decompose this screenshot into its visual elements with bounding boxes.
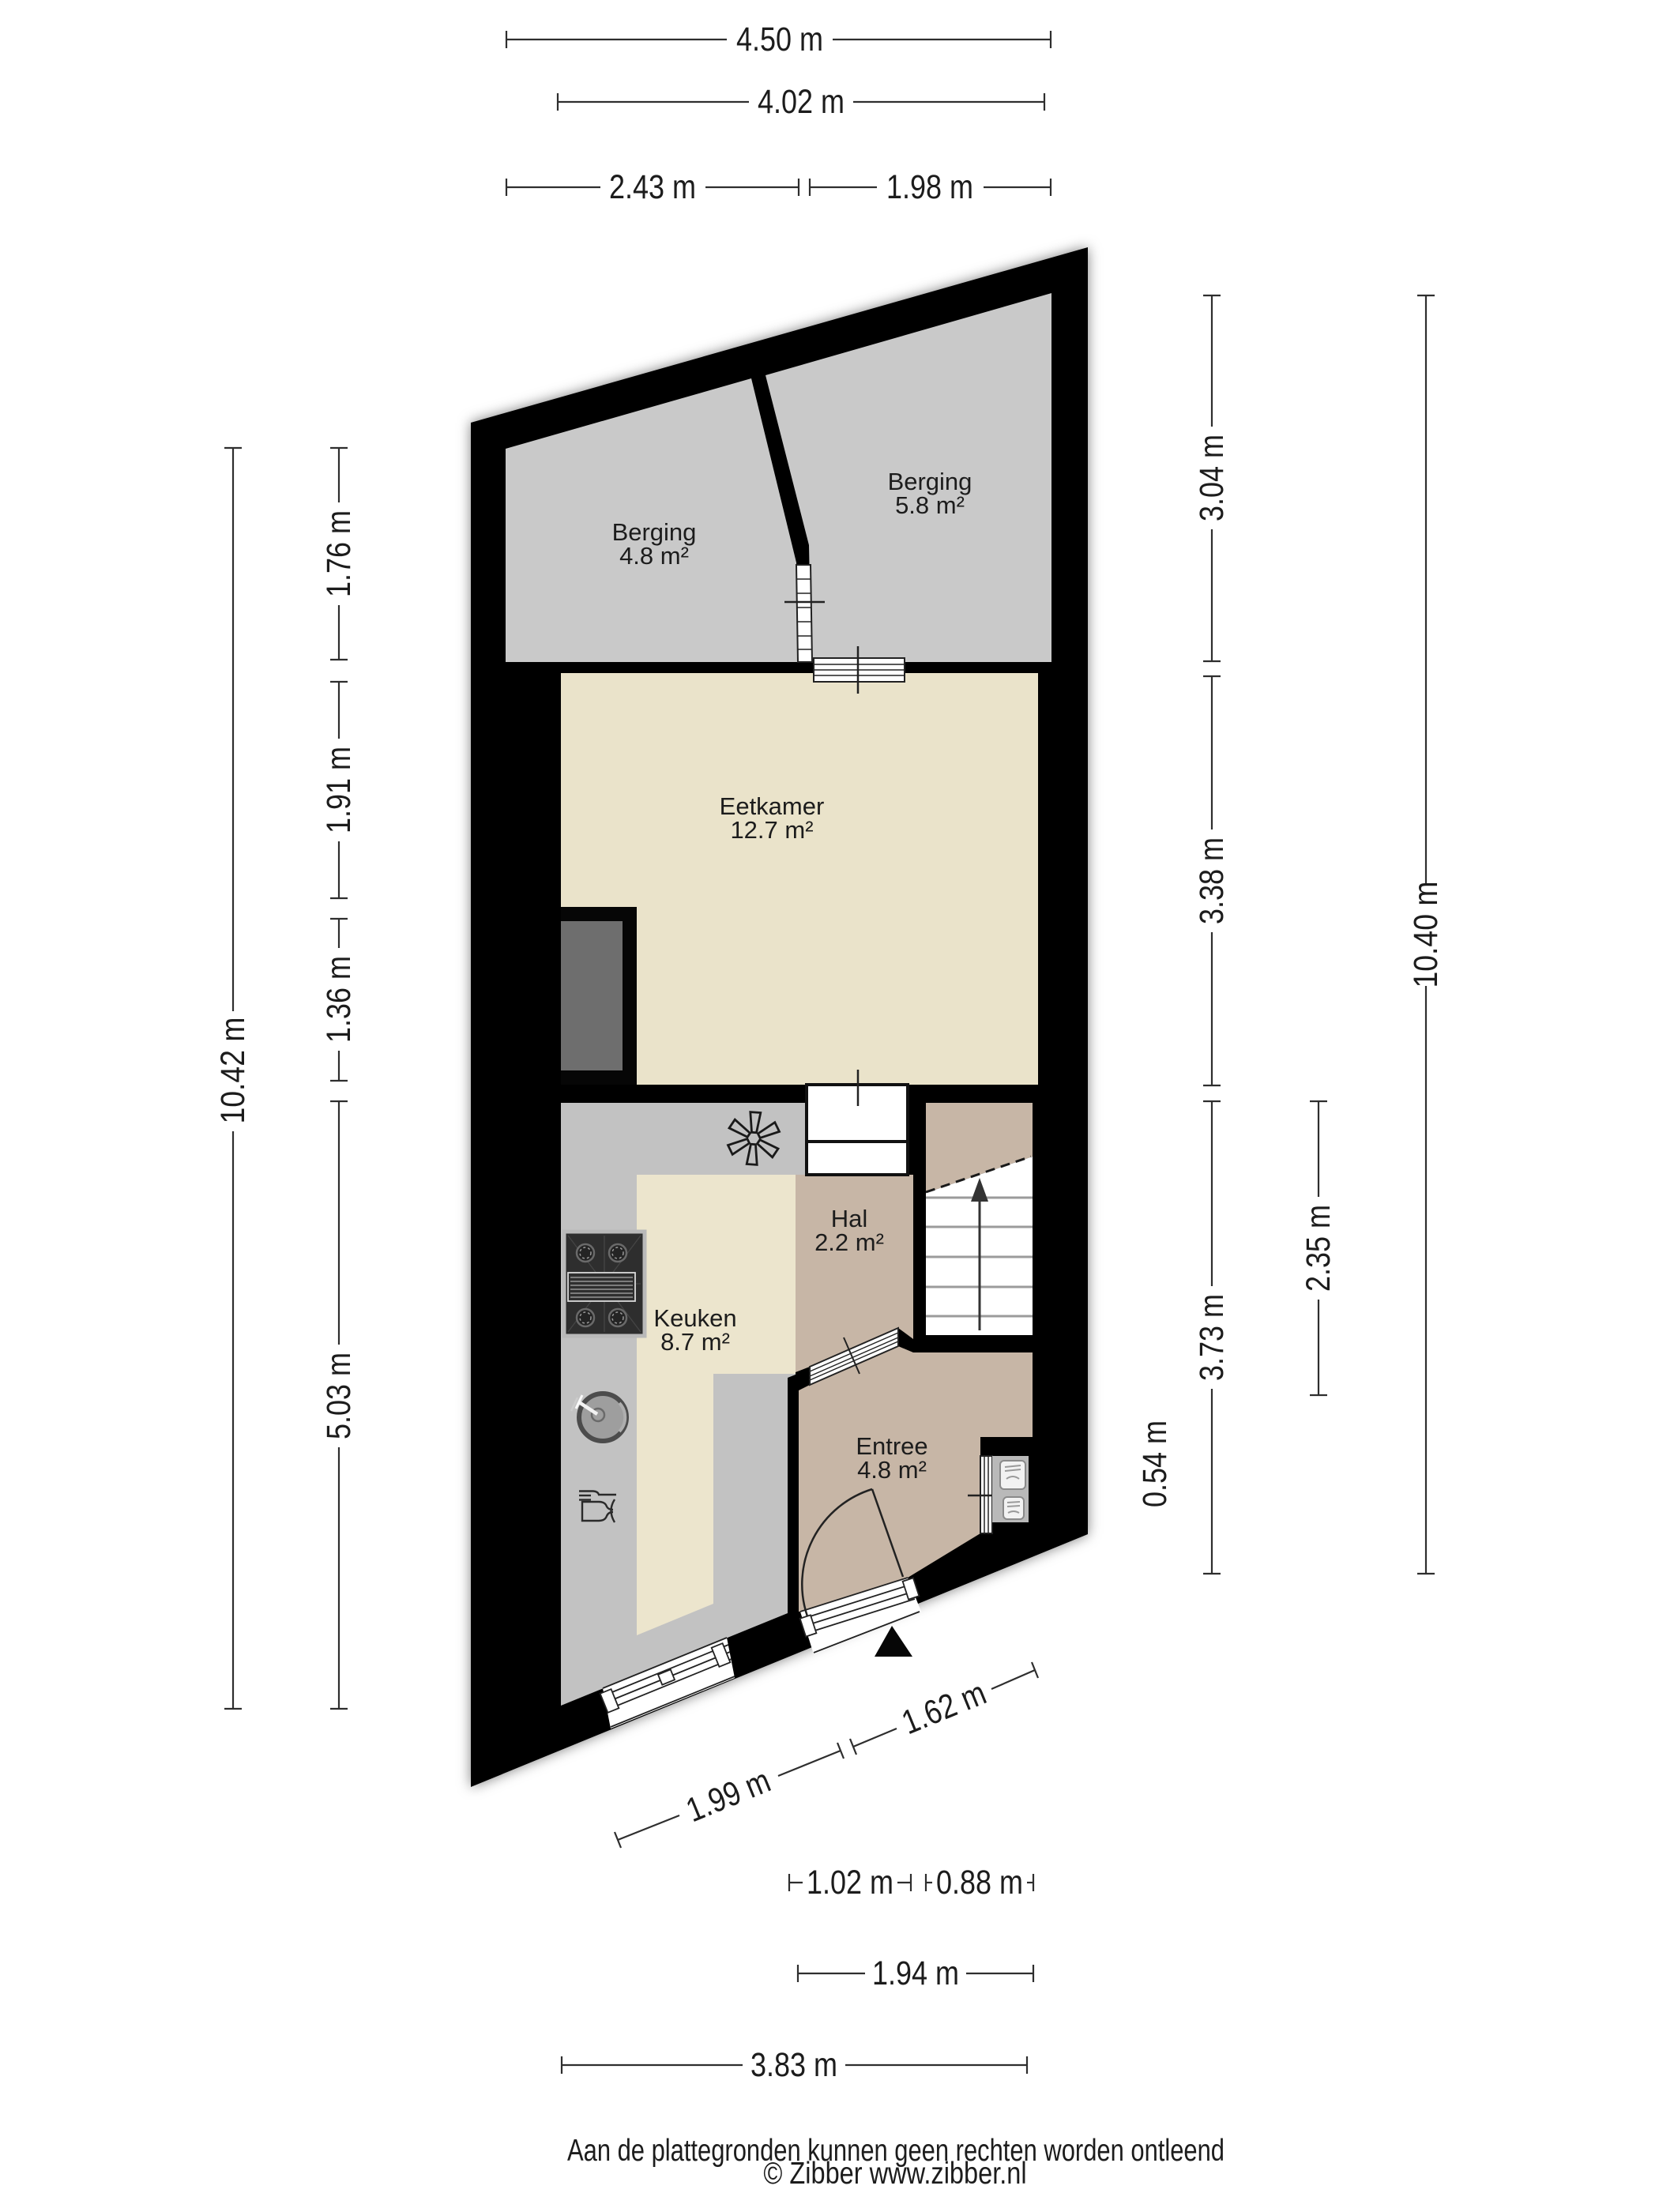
svg-text:3.04 m: 3.04 m (1193, 434, 1231, 521)
svg-text:4.02 m: 4.02 m (758, 83, 845, 121)
svg-text:1.36 m: 1.36 m (320, 956, 358, 1043)
svg-text:1.91 m: 1.91 m (320, 747, 358, 833)
svg-text:12.7 m²: 12.7 m² (730, 816, 813, 844)
svg-text:10.42 m: 10.42 m (214, 1018, 252, 1124)
svg-text:1.99 m: 1.99 m (681, 1762, 776, 1830)
svg-text:1.98 m: 1.98 m (886, 168, 973, 206)
svg-text:3.73 m: 3.73 m (1193, 1294, 1231, 1381)
svg-text:1.62 m: 1.62 m (897, 1674, 991, 1742)
svg-text:0.54 m: 0.54 m (1136, 1420, 1174, 1507)
svg-text:0.88 m: 0.88 m (936, 1864, 1023, 1902)
svg-text:8.7 m²: 8.7 m² (660, 1328, 730, 1356)
svg-text:1.94 m: 1.94 m (872, 1954, 959, 1992)
svg-text:5.8 m²: 5.8 m² (895, 491, 965, 519)
svg-text:2.2 m²: 2.2 m² (814, 1228, 884, 1256)
svg-text:3.38 m: 3.38 m (1193, 837, 1231, 924)
svg-text:2.43 m: 2.43 m (609, 168, 696, 206)
svg-text:1.02 m: 1.02 m (807, 1864, 893, 1902)
svg-text:2.35 m: 2.35 m (1300, 1205, 1337, 1292)
svg-text:© Zibber www.zibber.nl: © Zibber www.zibber.nl (763, 2155, 1026, 2191)
svg-text:1.76 m: 1.76 m (320, 510, 358, 597)
svg-text:10.40 m: 10.40 m (1407, 882, 1445, 988)
svg-text:4.8 m²: 4.8 m² (619, 542, 689, 570)
svg-text:4.8 m²: 4.8 m² (857, 1456, 927, 1484)
svg-text:5.03 m: 5.03 m (320, 1352, 358, 1439)
svg-text:4.50 m: 4.50 m (736, 21, 823, 58)
svg-text:3.83 m: 3.83 m (750, 2046, 837, 2084)
